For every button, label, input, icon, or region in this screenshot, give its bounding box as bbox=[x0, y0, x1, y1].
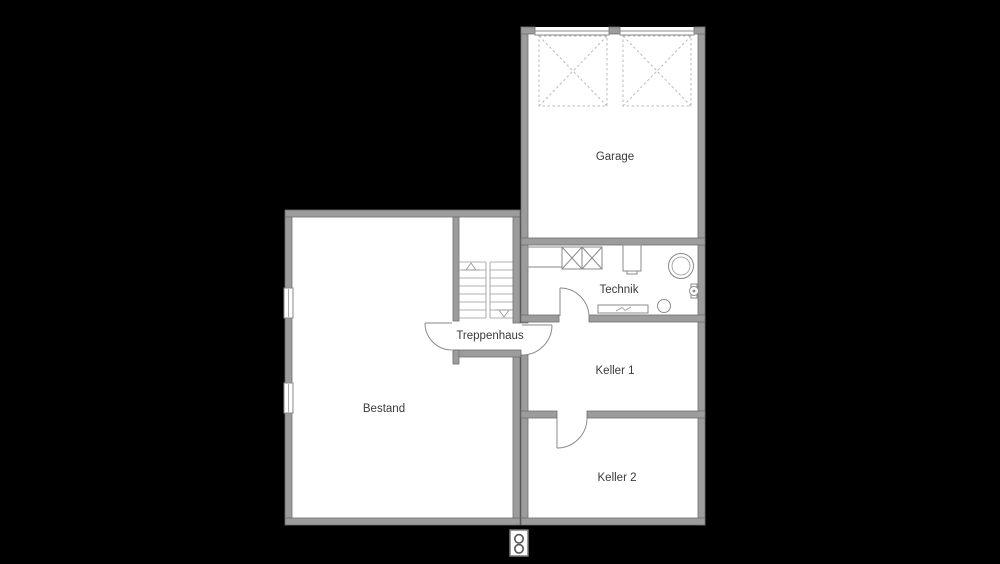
room-label-technik: Technik bbox=[600, 284, 639, 296]
window-symbol bbox=[284, 383, 293, 413]
boiler-icon bbox=[623, 245, 641, 274]
room-label-keller-1: Keller 1 bbox=[596, 365, 635, 377]
technik-counter bbox=[528, 247, 602, 269]
room-label-garage: Garage bbox=[596, 151, 634, 163]
radiator-icon bbox=[598, 305, 648, 313]
room-label-keller-2: Keller 2 bbox=[598, 472, 637, 484]
window-symbol bbox=[284, 288, 293, 318]
floorplan-drawing: Garage Technik Keller 1 Keller 2 Treppen… bbox=[0, 0, 1000, 564]
room-label-bestand: Bestand bbox=[363, 403, 405, 415]
inspection-shaft-icon bbox=[510, 530, 528, 556]
storage-tank-icon bbox=[669, 254, 694, 279]
floorplan-stage: Garage Technik Keller 1 Keller 2 Treppen… bbox=[0, 0, 1000, 564]
room-label-treppenhaus: Treppenhaus bbox=[456, 330, 524, 342]
floor-drain-icon bbox=[658, 300, 671, 313]
pump-valve-icon bbox=[690, 284, 699, 298]
